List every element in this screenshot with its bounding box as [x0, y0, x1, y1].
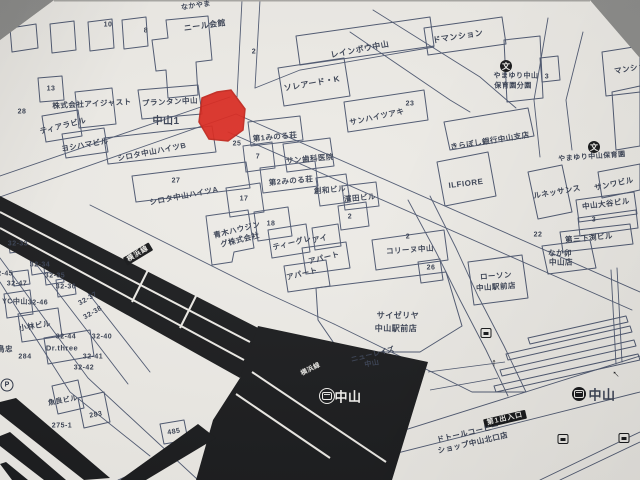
map-photo: なかやまニール会館1082レインボウ中山ソレアード・Kドマンションやまゆり中山保…	[0, 0, 640, 480]
paper-map	[0, 0, 640, 480]
map-canvas	[0, 0, 640, 480]
